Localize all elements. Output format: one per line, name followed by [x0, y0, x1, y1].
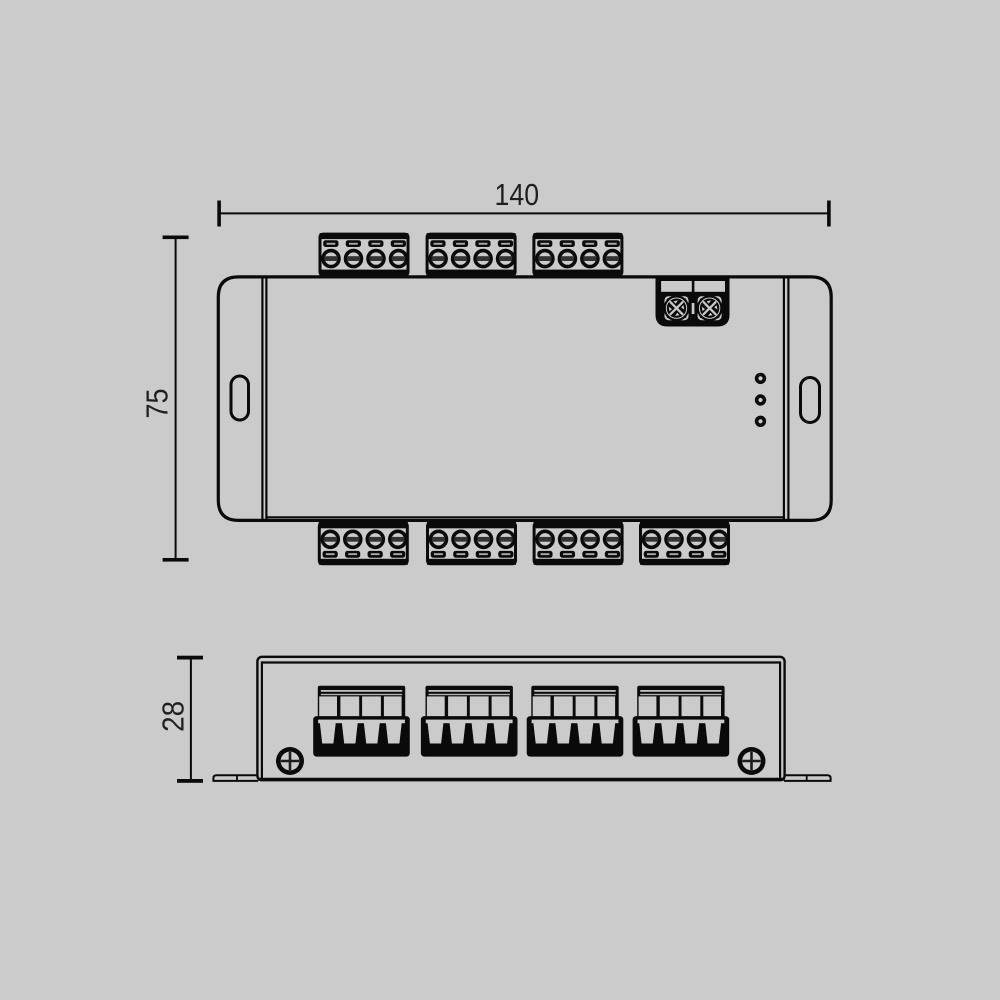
svg-text:140: 140 — [495, 178, 540, 212]
svg-text:28: 28 — [157, 701, 191, 732]
svg-text:75: 75 — [141, 389, 175, 419]
